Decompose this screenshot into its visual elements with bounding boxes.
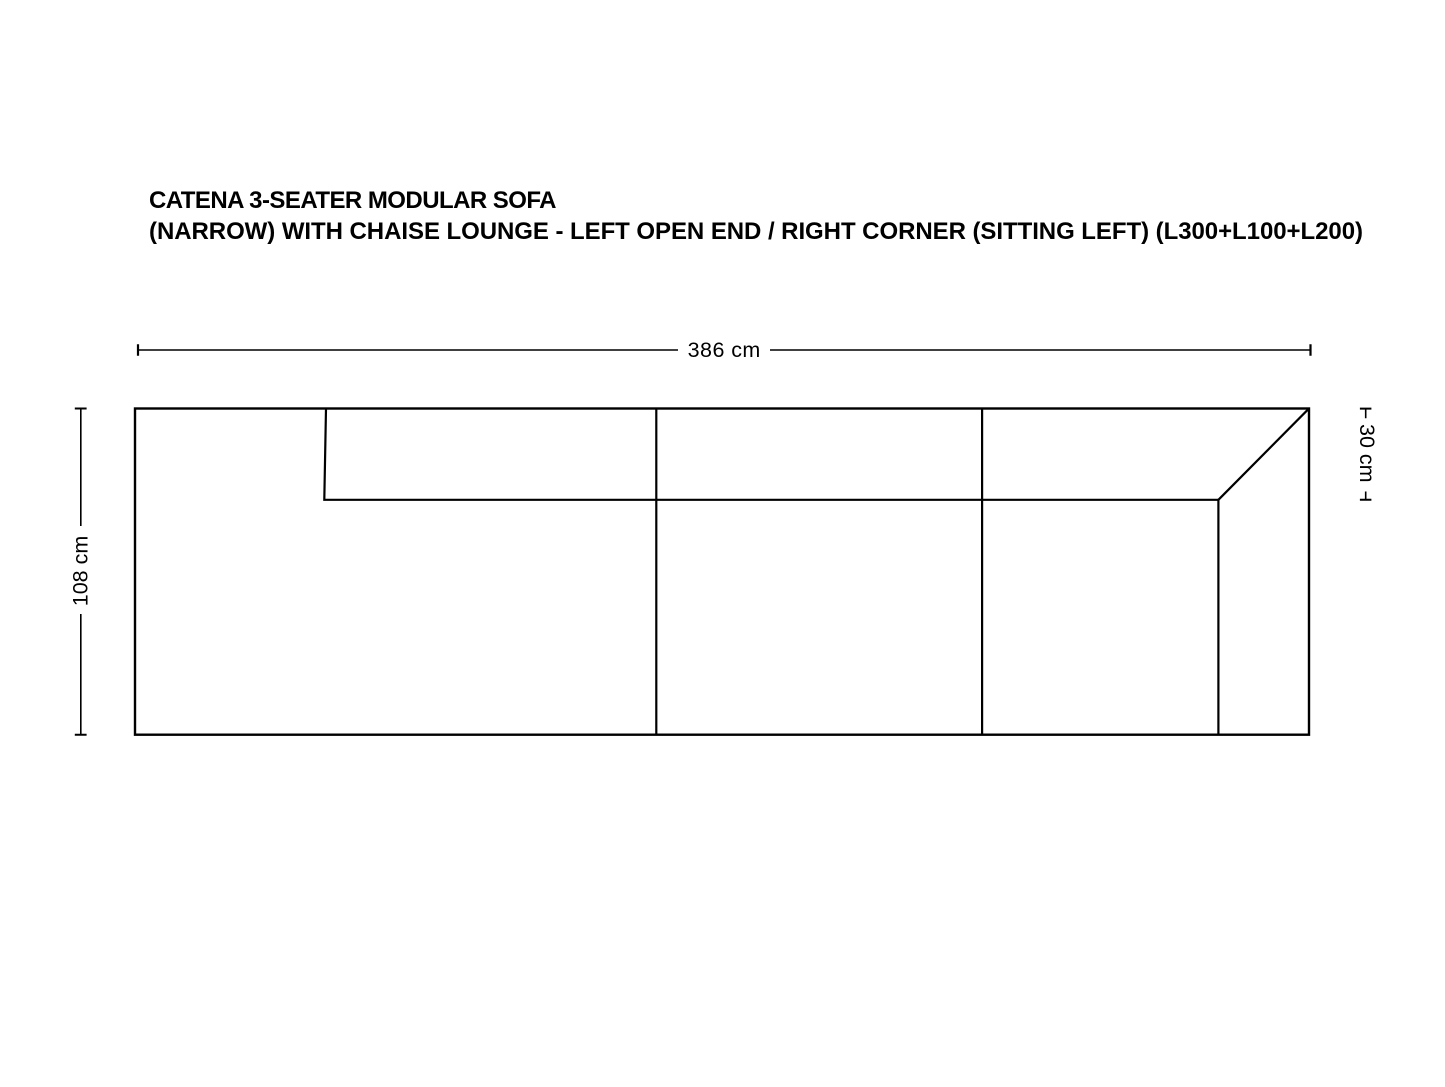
svg-text:108 cm: 108 cm: [68, 536, 92, 607]
svg-text:386 cm: 386 cm: [688, 338, 761, 362]
svg-text:(NARROW) WITH CHAISE LOUNGE -: (NARROW) WITH CHAISE LOUNGE - LEFT OPEN …: [149, 218, 1363, 245]
svg-text:CATENA 3-SEATER MODULAR SOFA: CATENA 3-SEATER MODULAR SOFA: [149, 187, 557, 214]
svg-text:30 cm: 30 cm: [1355, 424, 1379, 483]
